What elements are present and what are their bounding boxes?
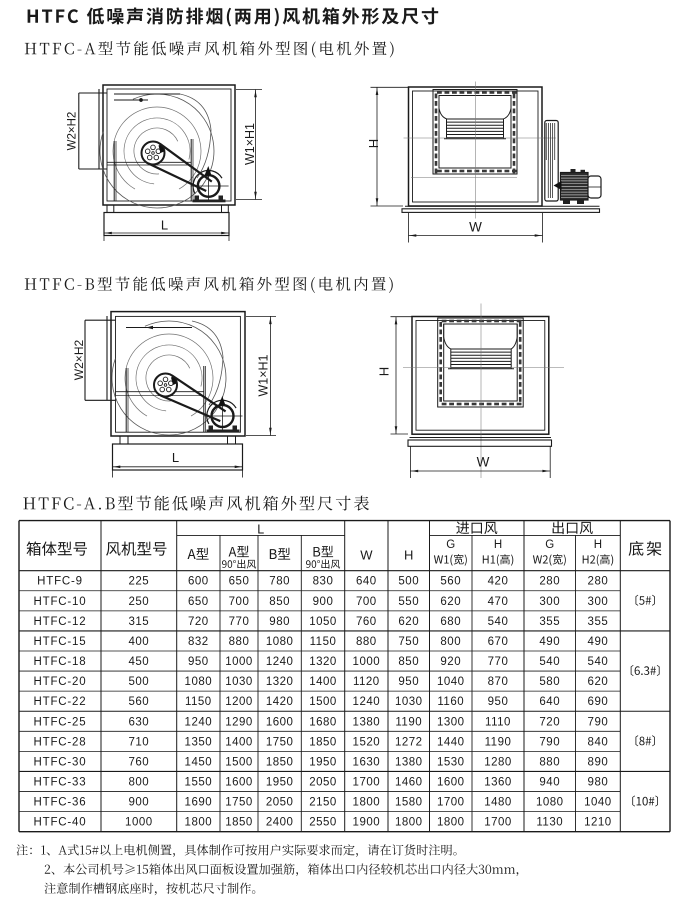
- svg-text:1040: 1040: [437, 676, 465, 688]
- svg-text:355: 355: [539, 616, 560, 628]
- svg-text:880: 880: [356, 636, 377, 648]
- svg-text:1680: 1680: [309, 716, 337, 728]
- svg-text:H: H: [366, 139, 381, 148]
- svg-text:650: 650: [188, 596, 209, 608]
- svg-text:1900: 1900: [353, 817, 381, 829]
- svg-text:850: 850: [398, 656, 419, 668]
- svg-text:920: 920: [440, 656, 461, 668]
- svg-text:280: 280: [539, 576, 560, 588]
- svg-text:300: 300: [588, 596, 609, 608]
- svg-text:1550: 1550: [185, 777, 213, 789]
- svg-text:W1×H1: W1×H1: [243, 123, 257, 165]
- svg-text:470: 470: [488, 596, 509, 608]
- svg-text:280: 280: [588, 576, 609, 588]
- svg-text:540: 540: [488, 616, 509, 628]
- svg-text:1950: 1950: [309, 756, 337, 768]
- svg-text:760: 760: [356, 616, 377, 628]
- svg-text:HTFC-12: HTFC-12: [34, 616, 87, 628]
- svg-text:2050: 2050: [309, 777, 337, 789]
- svg-text:720: 720: [188, 616, 209, 628]
- svg-text:800: 800: [440, 636, 461, 648]
- svg-text:720: 720: [539, 716, 560, 728]
- svg-text:980: 980: [588, 777, 609, 789]
- svg-text:W2×H2: W2×H2: [72, 340, 86, 381]
- svg-text:1600: 1600: [437, 777, 465, 789]
- svg-text:1700: 1700: [353, 777, 381, 789]
- svg-text:W: W: [360, 548, 373, 563]
- svg-text:950: 950: [488, 696, 509, 708]
- svg-text:1272: 1272: [395, 736, 423, 748]
- svg-text:1420: 1420: [266, 696, 294, 708]
- svg-text:1290: 1290: [225, 716, 253, 728]
- svg-text:1600: 1600: [266, 716, 294, 728]
- svg-text:560: 560: [440, 576, 461, 588]
- svg-text:1520: 1520: [353, 736, 381, 748]
- svg-text:1800: 1800: [353, 797, 381, 809]
- svg-text:HTFC-40: HTFC-40: [34, 817, 87, 829]
- svg-text:2150: 2150: [309, 797, 337, 809]
- svg-text:1200: 1200: [225, 696, 253, 708]
- svg-text:1040: 1040: [584, 797, 612, 809]
- svg-text:900: 900: [313, 596, 334, 608]
- svg-text:HTFC-22: HTFC-22: [34, 696, 87, 708]
- svg-text:1080: 1080: [266, 636, 294, 648]
- svg-text:830: 830: [313, 576, 334, 588]
- svg-text:620: 620: [398, 616, 419, 628]
- svg-text:G: G: [545, 539, 554, 551]
- svg-text:1350: 1350: [185, 736, 213, 748]
- svg-text:1320: 1320: [309, 656, 337, 668]
- svg-text:HTFC-9: HTFC-9: [37, 576, 83, 588]
- svg-text:300: 300: [539, 596, 560, 608]
- svg-text:560: 560: [129, 696, 150, 708]
- svg-text:1850: 1850: [266, 756, 294, 768]
- svg-text:1320: 1320: [266, 676, 294, 688]
- svg-text:1500: 1500: [309, 696, 337, 708]
- svg-text:690: 690: [588, 696, 609, 708]
- svg-text:1800: 1800: [185, 817, 213, 829]
- svg-text:HTFC-33: HTFC-33: [34, 777, 87, 789]
- svg-text:1000: 1000: [225, 656, 253, 668]
- svg-text:HTFC-30: HTFC-30: [34, 756, 87, 768]
- svg-text:1150: 1150: [185, 696, 212, 708]
- svg-text:1700: 1700: [484, 817, 512, 829]
- svg-text:1580: 1580: [395, 797, 423, 809]
- svg-text:L: L: [172, 450, 179, 465]
- svg-text:630: 630: [129, 716, 150, 728]
- svg-text:1000: 1000: [353, 656, 381, 668]
- svg-text:2050: 2050: [266, 797, 294, 809]
- svg-text:H: H: [494, 539, 502, 551]
- svg-text:1460: 1460: [395, 777, 423, 789]
- svg-text:770: 770: [229, 616, 250, 628]
- svg-text:1240: 1240: [266, 656, 294, 668]
- svg-text:950: 950: [398, 676, 419, 688]
- svg-text:940: 940: [539, 777, 560, 789]
- svg-text:1280: 1280: [484, 756, 512, 768]
- svg-text:W2×H2: W2×H2: [67, 112, 79, 151]
- svg-text:1240: 1240: [353, 696, 381, 708]
- svg-text:1210: 1210: [584, 817, 612, 829]
- svg-text:1700: 1700: [437, 797, 465, 809]
- svg-text:840: 840: [588, 736, 609, 748]
- svg-text:1800: 1800: [437, 817, 465, 829]
- svg-text:HTFC-15: HTFC-15: [34, 636, 87, 648]
- svg-text:710: 710: [129, 736, 150, 748]
- svg-text:225: 225: [129, 576, 150, 588]
- svg-text:980: 980: [269, 616, 290, 628]
- svg-text:1400: 1400: [309, 676, 337, 688]
- svg-text:540: 540: [539, 656, 560, 668]
- svg-text:870: 870: [488, 676, 509, 688]
- svg-text:1600: 1600: [225, 777, 253, 789]
- svg-text:1750: 1750: [266, 736, 294, 748]
- svg-text:1400: 1400: [225, 736, 253, 748]
- svg-text:1500: 1500: [225, 756, 253, 768]
- svg-text:1750: 1750: [225, 797, 253, 809]
- svg-text:HTFC-36: HTFC-36: [34, 797, 87, 809]
- svg-text:640: 640: [356, 576, 377, 588]
- svg-text:1380: 1380: [353, 716, 381, 728]
- svg-text:1080: 1080: [536, 797, 564, 809]
- svg-text:1380: 1380: [395, 756, 423, 768]
- svg-text:1630: 1630: [353, 756, 381, 768]
- svg-text:950: 950: [188, 656, 209, 668]
- svg-text:1360: 1360: [484, 777, 512, 789]
- svg-text:880: 880: [539, 756, 560, 768]
- svg-text:670: 670: [488, 636, 509, 648]
- svg-text:1530: 1530: [437, 756, 465, 768]
- svg-text:HTFC-20: HTFC-20: [34, 676, 87, 688]
- svg-text:640: 640: [539, 696, 560, 708]
- svg-text:HTFC-28: HTFC-28: [34, 736, 87, 748]
- svg-text:1480: 1480: [484, 797, 512, 809]
- svg-text:490: 490: [539, 636, 560, 648]
- svg-text:1440: 1440: [437, 736, 465, 748]
- svg-text:450: 450: [129, 656, 150, 668]
- svg-text:420: 420: [488, 576, 509, 588]
- svg-text:1050: 1050: [309, 616, 337, 628]
- svg-text:HTFC-25: HTFC-25: [34, 716, 87, 728]
- svg-text:760: 760: [129, 756, 150, 768]
- svg-text:620: 620: [440, 596, 461, 608]
- svg-text:770: 770: [488, 656, 509, 668]
- svg-text:650: 650: [229, 576, 250, 588]
- svg-text:880: 880: [229, 636, 250, 648]
- svg-text:1030: 1030: [225, 676, 253, 688]
- svg-text:700: 700: [356, 596, 377, 608]
- svg-text:1080: 1080: [185, 676, 213, 688]
- svg-text:1300: 1300: [437, 716, 465, 728]
- svg-text:HTFC-18: HTFC-18: [34, 656, 87, 668]
- svg-text:W: W: [477, 455, 490, 470]
- svg-text:1130: 1130: [536, 817, 563, 829]
- svg-text:G: G: [446, 539, 455, 551]
- svg-text:L: L: [161, 218, 168, 233]
- svg-text:890: 890: [588, 756, 609, 768]
- svg-text:500: 500: [398, 576, 419, 588]
- svg-text:800: 800: [129, 777, 150, 789]
- svg-text:355: 355: [588, 616, 609, 628]
- svg-text:1110: 1110: [485, 716, 511, 728]
- svg-text:W1×H1: W1×H1: [257, 354, 271, 396]
- svg-text:680: 680: [440, 616, 461, 628]
- svg-text:750: 750: [398, 636, 419, 648]
- svg-text:600: 600: [188, 576, 209, 588]
- svg-text:W: W: [469, 220, 482, 235]
- svg-text:1850: 1850: [309, 736, 337, 748]
- svg-text:1150: 1150: [310, 636, 337, 648]
- svg-text:L: L: [257, 523, 264, 537]
- svg-text:790: 790: [539, 736, 560, 748]
- svg-text:1240: 1240: [185, 716, 213, 728]
- svg-text:1000: 1000: [125, 817, 153, 829]
- svg-text:2400: 2400: [266, 817, 294, 829]
- svg-text:832: 832: [188, 636, 209, 648]
- svg-text:H: H: [404, 548, 413, 563]
- svg-text:250: 250: [129, 596, 150, 608]
- svg-text:1450: 1450: [185, 756, 213, 768]
- svg-text:580: 580: [539, 676, 560, 688]
- svg-text:1800: 1800: [395, 817, 423, 829]
- svg-text:1950: 1950: [266, 777, 294, 789]
- svg-text:1030: 1030: [395, 696, 423, 708]
- svg-text:500: 500: [129, 676, 150, 688]
- svg-text:700: 700: [229, 596, 250, 608]
- svg-text:550: 550: [398, 596, 419, 608]
- svg-text:315: 315: [129, 616, 150, 628]
- svg-text:1690: 1690: [185, 797, 213, 809]
- svg-text:400: 400: [129, 636, 150, 648]
- svg-text:620: 620: [588, 676, 609, 688]
- svg-text:2550: 2550: [309, 817, 337, 829]
- svg-text:490: 490: [588, 636, 609, 648]
- svg-text:850: 850: [269, 596, 290, 608]
- svg-text:H: H: [594, 539, 602, 551]
- svg-text:540: 540: [588, 656, 609, 668]
- svg-text:1160: 1160: [437, 696, 464, 708]
- svg-text:1120: 1120: [353, 676, 380, 688]
- svg-text:780: 780: [269, 576, 290, 588]
- svg-text:HTFC-10: HTFC-10: [34, 596, 87, 608]
- svg-text:1190: 1190: [395, 716, 422, 728]
- svg-text:1190: 1190: [485, 736, 512, 748]
- svg-text:1850: 1850: [225, 817, 253, 829]
- svg-text:790: 790: [588, 716, 609, 728]
- svg-text:900: 900: [129, 797, 150, 809]
- svg-text:H: H: [377, 367, 392, 376]
